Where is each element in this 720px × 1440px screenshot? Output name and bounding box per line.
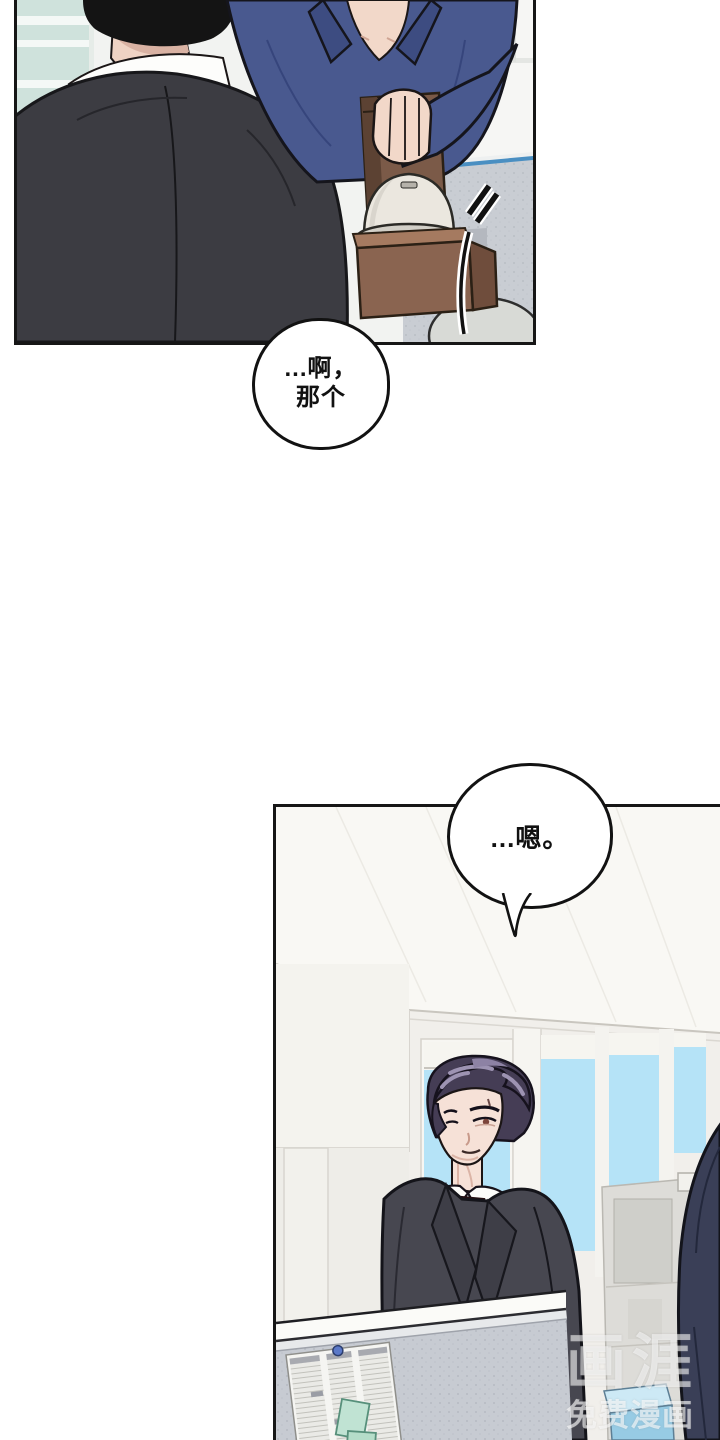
sticky-note-2 (346, 1431, 376, 1440)
push-pin (332, 1345, 343, 1356)
panel-1 (14, 0, 536, 345)
panel-1-art (17, 0, 533, 342)
speech-bubble-2: ...嗯。 (447, 763, 613, 909)
bubble-2-line-1: ...嗯。 (491, 818, 570, 855)
bubble-1-line-2: 那个 (296, 383, 346, 412)
comic-page: { "page": { "width": 720, "height": 1440… (0, 0, 720, 1440)
blue-box (604, 1384, 674, 1440)
bubble-1-line-1: ...啊， (284, 354, 357, 383)
speech-bubble-1: ...啊， 那个 (252, 318, 390, 450)
speech-bubble-2-tail (497, 893, 537, 943)
